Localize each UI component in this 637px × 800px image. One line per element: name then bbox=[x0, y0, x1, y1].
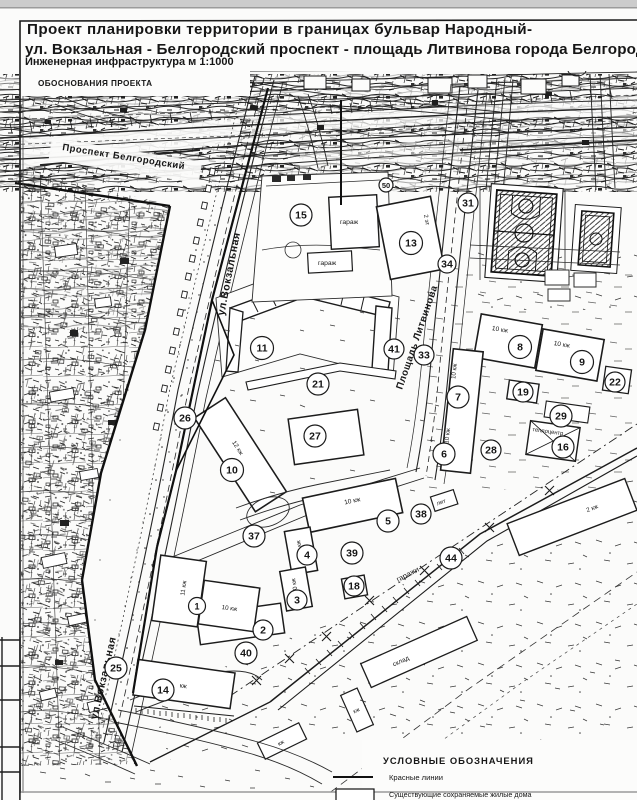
svg-text:2: 2 bbox=[260, 625, 266, 637]
svg-text:15: 15 bbox=[295, 210, 307, 222]
svg-text:Существующие сохраняемые жилые: Существующие сохраняемые жилые дома bbox=[389, 790, 532, 799]
svg-text:Проект планировки территории в: Проект планировки территории в границах … bbox=[27, 21, 532, 38]
svg-text:16: 16 bbox=[557, 442, 569, 454]
svg-text:3: 3 bbox=[294, 595, 300, 607]
svg-text:50: 50 bbox=[382, 181, 390, 190]
svg-text:10: 10 bbox=[226, 465, 238, 477]
svg-text:31: 31 bbox=[462, 198, 474, 210]
svg-text:4: 4 bbox=[304, 550, 310, 562]
svg-text:гараж: гараж bbox=[318, 260, 337, 267]
svg-text:Инженерная инфраструктура м 1:: Инженерная инфраструктура м 1:1000 bbox=[25, 56, 234, 68]
svg-text:41: 41 bbox=[388, 344, 400, 356]
svg-text:26: 26 bbox=[179, 413, 191, 425]
svg-text:37: 37 bbox=[248, 531, 260, 543]
svg-text:29: 29 bbox=[555, 411, 567, 423]
svg-text:39: 39 bbox=[346, 548, 358, 560]
svg-text:1: 1 bbox=[194, 602, 199, 612]
svg-text:11: 11 bbox=[256, 343, 267, 355]
svg-text:7: 7 bbox=[455, 392, 461, 404]
svg-text:38: 38 bbox=[415, 509, 427, 521]
svg-text:25: 25 bbox=[110, 663, 122, 675]
svg-text:28: 28 bbox=[485, 445, 497, 457]
svg-text:40: 40 bbox=[240, 648, 252, 660]
svg-text:6: 6 bbox=[441, 449, 447, 461]
svg-text:27: 27 bbox=[309, 431, 321, 443]
svg-text:21: 21 bbox=[312, 379, 324, 391]
svg-text:22: 22 bbox=[609, 377, 621, 389]
svg-text:9: 9 bbox=[579, 357, 585, 369]
svg-text:ОБОСНОВАНИЯ ПРОЕКТА: ОБОСНОВАНИЯ ПРОЕКТА bbox=[38, 79, 152, 88]
svg-text:33: 33 bbox=[418, 350, 430, 362]
svg-text:Красные линии: Красные линии bbox=[389, 773, 443, 782]
svg-text:5: 5 bbox=[385, 516, 391, 528]
svg-text:18: 18 bbox=[348, 581, 360, 593]
svg-text:14: 14 bbox=[157, 685, 169, 697]
svg-text:44: 44 bbox=[445, 553, 457, 565]
svg-text:19: 19 bbox=[517, 387, 529, 399]
svg-text:гараж: гараж bbox=[340, 219, 359, 226]
svg-text:13: 13 bbox=[405, 238, 417, 250]
svg-text:34: 34 bbox=[441, 259, 453, 271]
svg-text:УСЛОВНЫЕ ОБОЗНАЧЕНИЯ: УСЛОВНЫЕ ОБОЗНАЧЕНИЯ bbox=[383, 755, 534, 766]
svg-text:8: 8 bbox=[517, 342, 523, 354]
